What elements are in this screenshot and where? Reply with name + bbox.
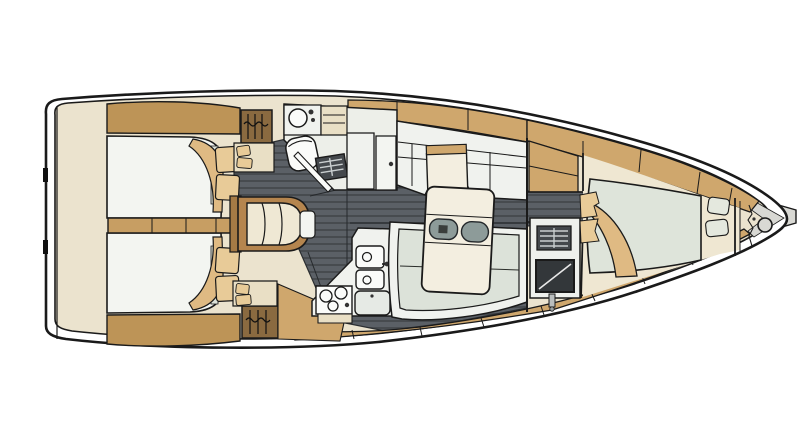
pillow [707,197,730,216]
aft-cabin-top [107,102,240,218]
screen-icon [536,260,574,292]
nav-media-unit [527,138,585,312]
aft-cabin-divider [108,218,240,233]
yacht-floor-plan [0,0,800,446]
transom-fitting-tick [43,168,48,182]
hull-shelf-band [107,314,240,346]
wash-basin-icon [289,109,307,127]
sink-icon [356,270,384,289]
linen-item [237,157,253,168]
linen-item [236,283,250,294]
linen-item [236,294,252,305]
shower-stall-panel [347,133,374,189]
floor-plan-canvas [0,0,800,446]
hull-shelf-band [107,102,240,134]
saloon-table [421,186,494,294]
stove-drawer [318,314,352,323]
chain-pipe-icon [752,217,755,220]
icebox-latch [370,294,373,297]
steps [247,203,302,245]
windlass-icon [758,218,772,232]
stove-icon [316,286,352,314]
tray-inset [438,225,447,233]
vent-grille-icon [537,226,571,250]
faucet-icon [311,118,315,122]
floor-hatch [300,211,315,238]
door-handle-icon [389,162,393,166]
companionway-steps [230,196,315,252]
unit-leg [549,294,555,307]
sink-icon [356,246,384,268]
end-seat [426,144,468,192]
aft-cabin-bottom [107,233,240,346]
linen-item [236,145,250,157]
head-cabinet [321,106,347,135]
pillow [705,219,729,237]
hanger-icon [246,310,270,334]
linen-item [580,192,599,218]
faucet-icon [309,110,314,115]
unit-foot [550,307,554,311]
table-tray-icon [461,221,489,242]
transom-fitting-tick [43,240,48,254]
head-door-panel [376,136,396,190]
